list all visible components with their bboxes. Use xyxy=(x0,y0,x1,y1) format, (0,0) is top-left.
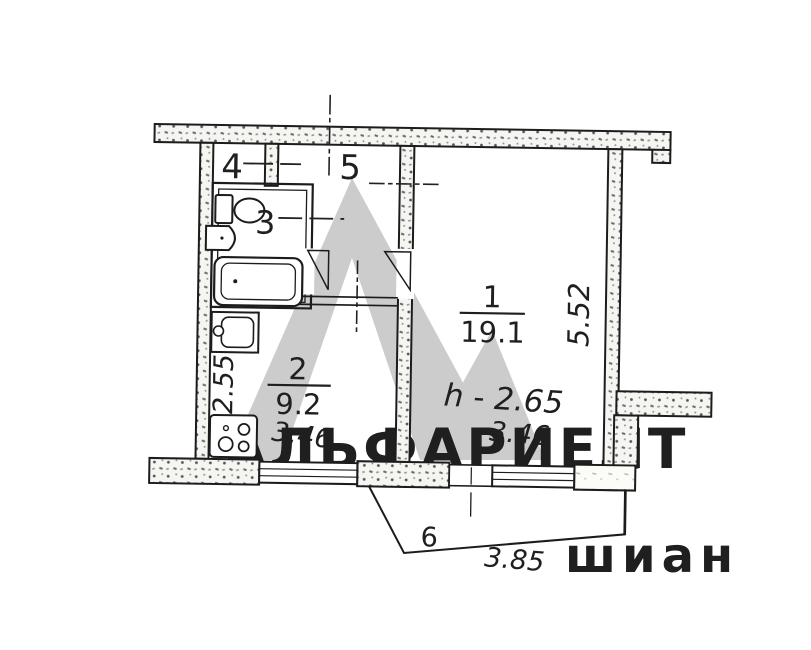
floor-plan-scan: АЛЬФАРИЕЛТ шиан xyxy=(0,0,811,650)
room1-number: 1 xyxy=(482,280,502,315)
axis-line-hall-vertical xyxy=(357,261,358,331)
room2-area: 9.2 xyxy=(275,387,322,422)
room2-number: 2 xyxy=(288,352,308,387)
bottom-wall-corner-pier xyxy=(574,465,635,491)
dim-kitchen-left: 2.55 xyxy=(208,354,240,415)
room4-leader-line xyxy=(244,163,300,164)
room2-fraction-bar xyxy=(269,385,330,386)
room1-fraction-bar xyxy=(461,313,524,314)
balcony-right-edge xyxy=(625,490,626,534)
axis-line-hall-horizontal xyxy=(370,183,442,184)
axis-line-top xyxy=(329,96,330,175)
bathtub xyxy=(214,257,303,306)
washbasin xyxy=(206,226,235,250)
room3-number: 3 xyxy=(255,204,276,242)
floor-plan-svg: АЛЬФАРИЕЛТ шиан xyxy=(0,0,811,650)
room5-number: 5 xyxy=(339,148,361,188)
room1-window xyxy=(492,465,574,487)
room1-label: 1 19.1 xyxy=(460,280,526,350)
dim-room1-width: 3.46 xyxy=(488,416,551,452)
dim-balcony-width: 3.85 xyxy=(483,542,546,578)
bottom-wall-left-segment xyxy=(149,458,259,485)
balcony-door xyxy=(449,465,492,487)
room4-number: 4 xyxy=(221,147,243,187)
room3-leader-line xyxy=(279,218,343,219)
room6-number: 6 xyxy=(420,522,438,553)
kitchen-window xyxy=(259,462,357,485)
kitchen-sink xyxy=(211,312,259,353)
loggia-wall-vertical xyxy=(613,415,638,467)
dim-right-side: 5.52 xyxy=(561,282,596,347)
room1-area: 19.1 xyxy=(460,315,525,350)
partition-room4-room5 xyxy=(265,144,279,186)
stove xyxy=(210,415,258,458)
loggia-wall-horizontal xyxy=(616,391,711,416)
bottom-wall-pier xyxy=(357,461,449,487)
top-wall-right-nub xyxy=(652,150,670,163)
